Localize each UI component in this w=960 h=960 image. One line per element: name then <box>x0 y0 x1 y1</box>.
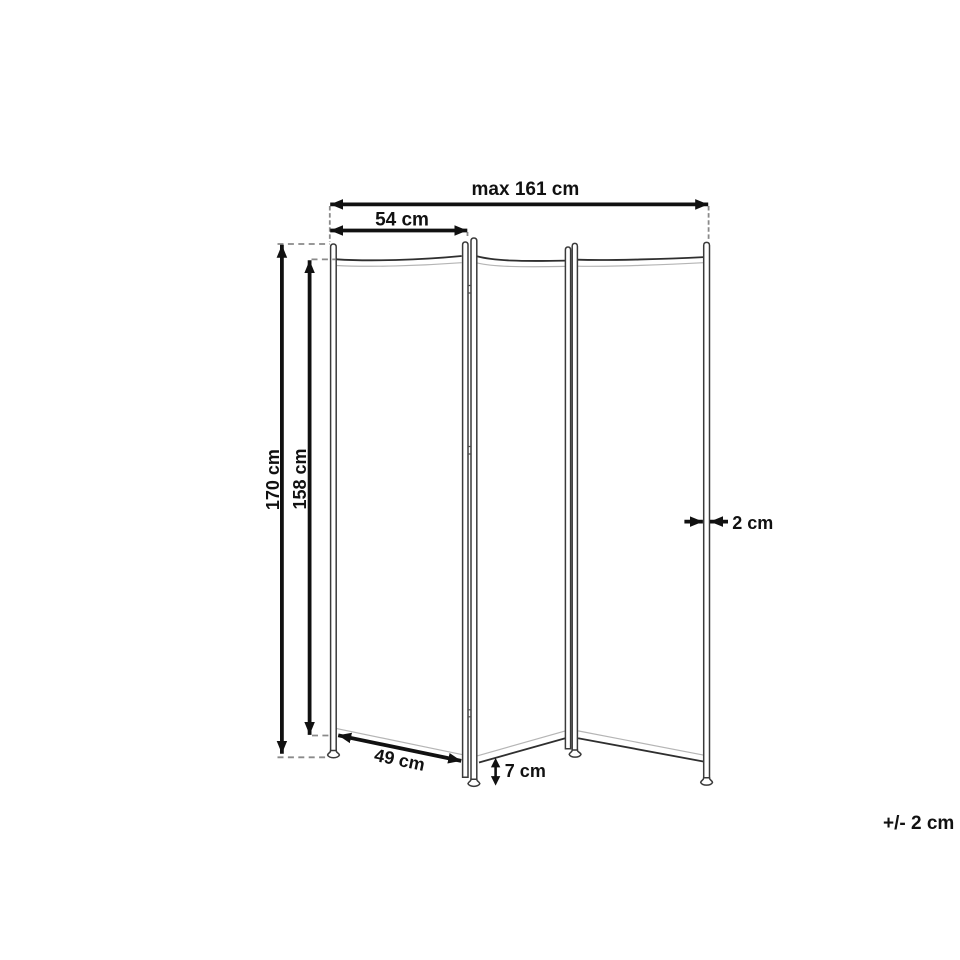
svg-text:170 cm: 170 cm <box>263 449 283 510</box>
svg-text:54 cm: 54 cm <box>375 210 429 231</box>
svg-text:+/- 2 cm: +/- 2 cm <box>883 813 954 834</box>
svg-text:2 cm: 2 cm <box>732 513 773 533</box>
svg-text:max 161 cm: max 161 cm <box>472 179 580 200</box>
svg-text:158 cm: 158 cm <box>290 448 310 509</box>
svg-text:7 cm: 7 cm <box>505 761 546 781</box>
